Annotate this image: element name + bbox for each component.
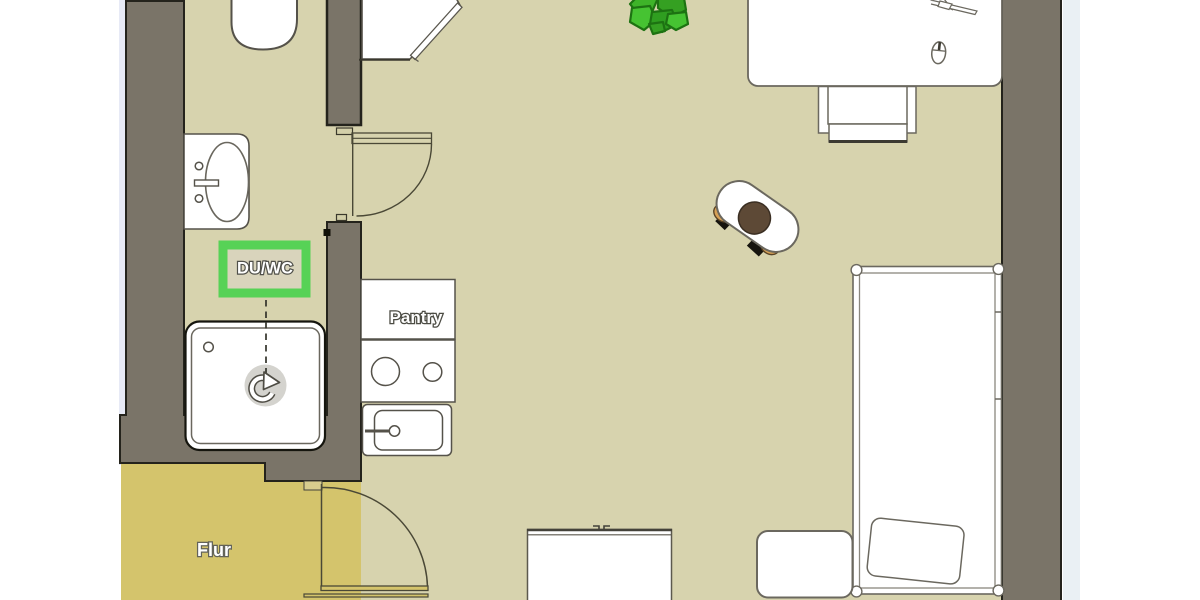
svg-text:Pantry: Pantry [390, 308, 443, 327]
svg-text:Flur: Flur [197, 540, 231, 560]
svg-text:DU/WC: DU/WC [237, 260, 293, 278]
